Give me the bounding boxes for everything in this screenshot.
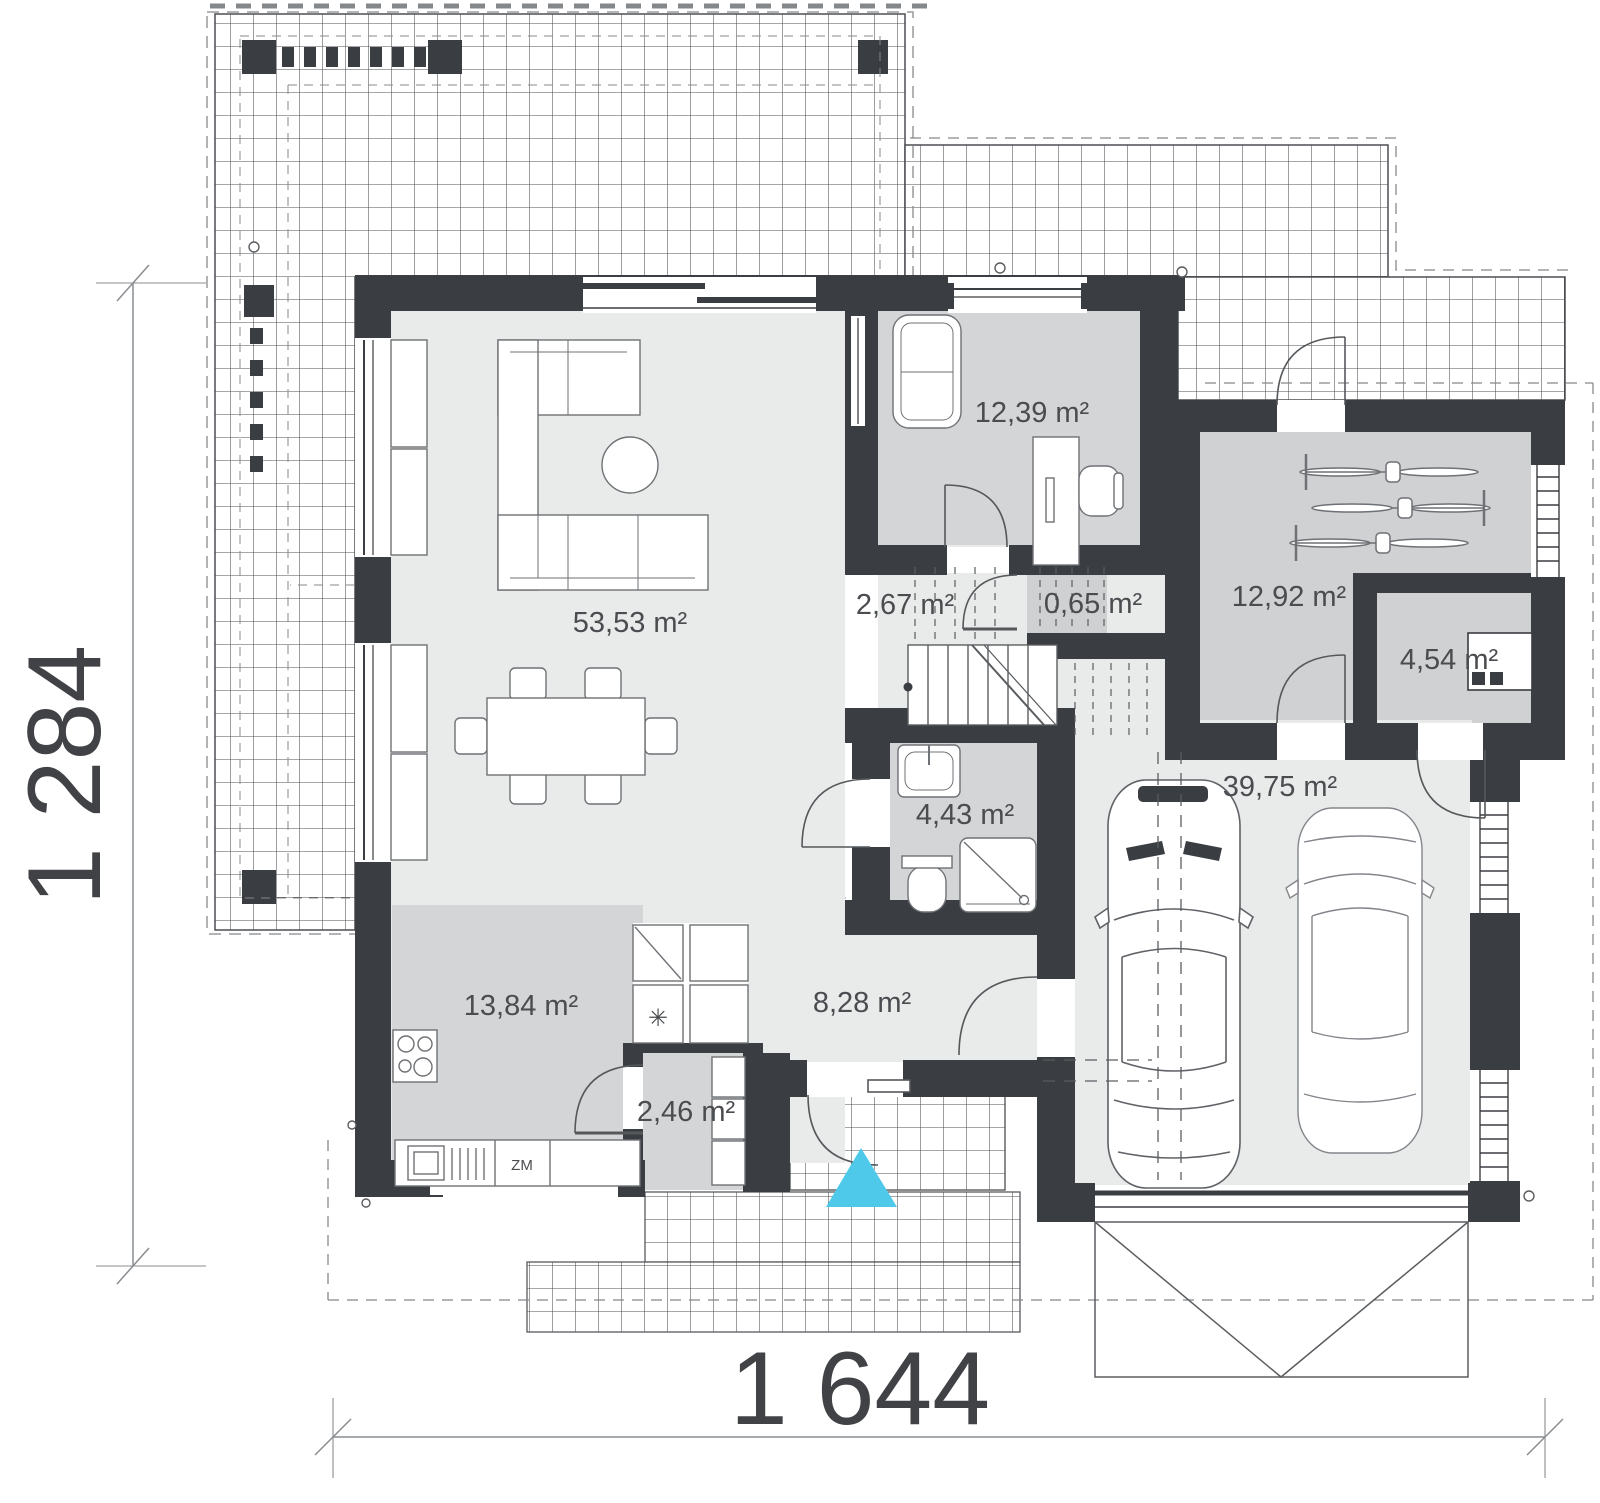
tall-cabinet [690,985,748,1043]
office-chair [1079,466,1119,516]
room-label-office: 12,39 m² [975,397,1090,429]
room-label-closet: 0,65 m² [1044,588,1143,620]
toilet [908,866,946,912]
room-label-pantry: 2,46 m² [637,1096,736,1128]
car-left [1095,780,1253,1188]
coffee-table [602,437,658,493]
freezer-icon: ✳ [648,1005,668,1032]
office-chair-back [1114,473,1123,509]
floor-plan-drawing: 53,53 m² 12,39 m² 2,67 m² 0,65 m² 12,92 … [0,0,1600,1503]
sliding-window-living [583,277,816,313]
floor-plan-canvas: 53,53 m² 12,39 m² 2,67 m² 0,65 m² 12,92 … [0,0,1600,1503]
room-label-utility: 12,92 m² [1232,581,1347,613]
bathroom-door-opening [852,779,890,847]
desk [1033,437,1079,565]
dimension-label-height: 1 284 [7,645,123,905]
room-label-bathroom: 4,43 m² [916,799,1015,831]
toilet-tank [902,856,952,868]
pantry-shelf [712,1057,745,1097]
office-door-opening [947,547,1009,573]
pantry-shelf [712,1141,745,1185]
room-label-kitchen: 13,84 m² [464,990,579,1022]
room-label-living: 53,53 m² [573,607,688,639]
window-living-left-2 [355,643,427,862]
window-garage-right-1 [1470,802,1520,913]
room-label-hall: 2,67 m² [856,589,955,621]
room-label-storage: 4,54 m² [1400,644,1499,676]
garage-hall-door-opening [1037,979,1075,1057]
garage-door [1095,1185,1468,1377]
dishwasher-label: ZM [511,1157,533,1174]
room-label-hallway: 8,28 m² [813,987,912,1019]
window-office [948,277,1087,313]
car-sunroof [1138,786,1208,802]
tall-cabinet [690,925,748,981]
terrace-door-opening [1277,400,1345,432]
glass-slit-living-office [851,316,865,426]
window-utility-right [1531,465,1565,577]
dimension-label-width: 1 644 [730,1331,990,1447]
garage-storage-door-opening [1418,723,1483,760]
window-garage-right-2 [1470,1070,1520,1181]
window-living-left-1 [355,338,427,557]
garage-utility-door-opening [1277,723,1345,760]
stove [393,1030,437,1082]
bicycles [1290,454,1490,561]
car-right [1286,808,1434,1153]
room-label-garage: 39,75 m² [1223,771,1338,803]
